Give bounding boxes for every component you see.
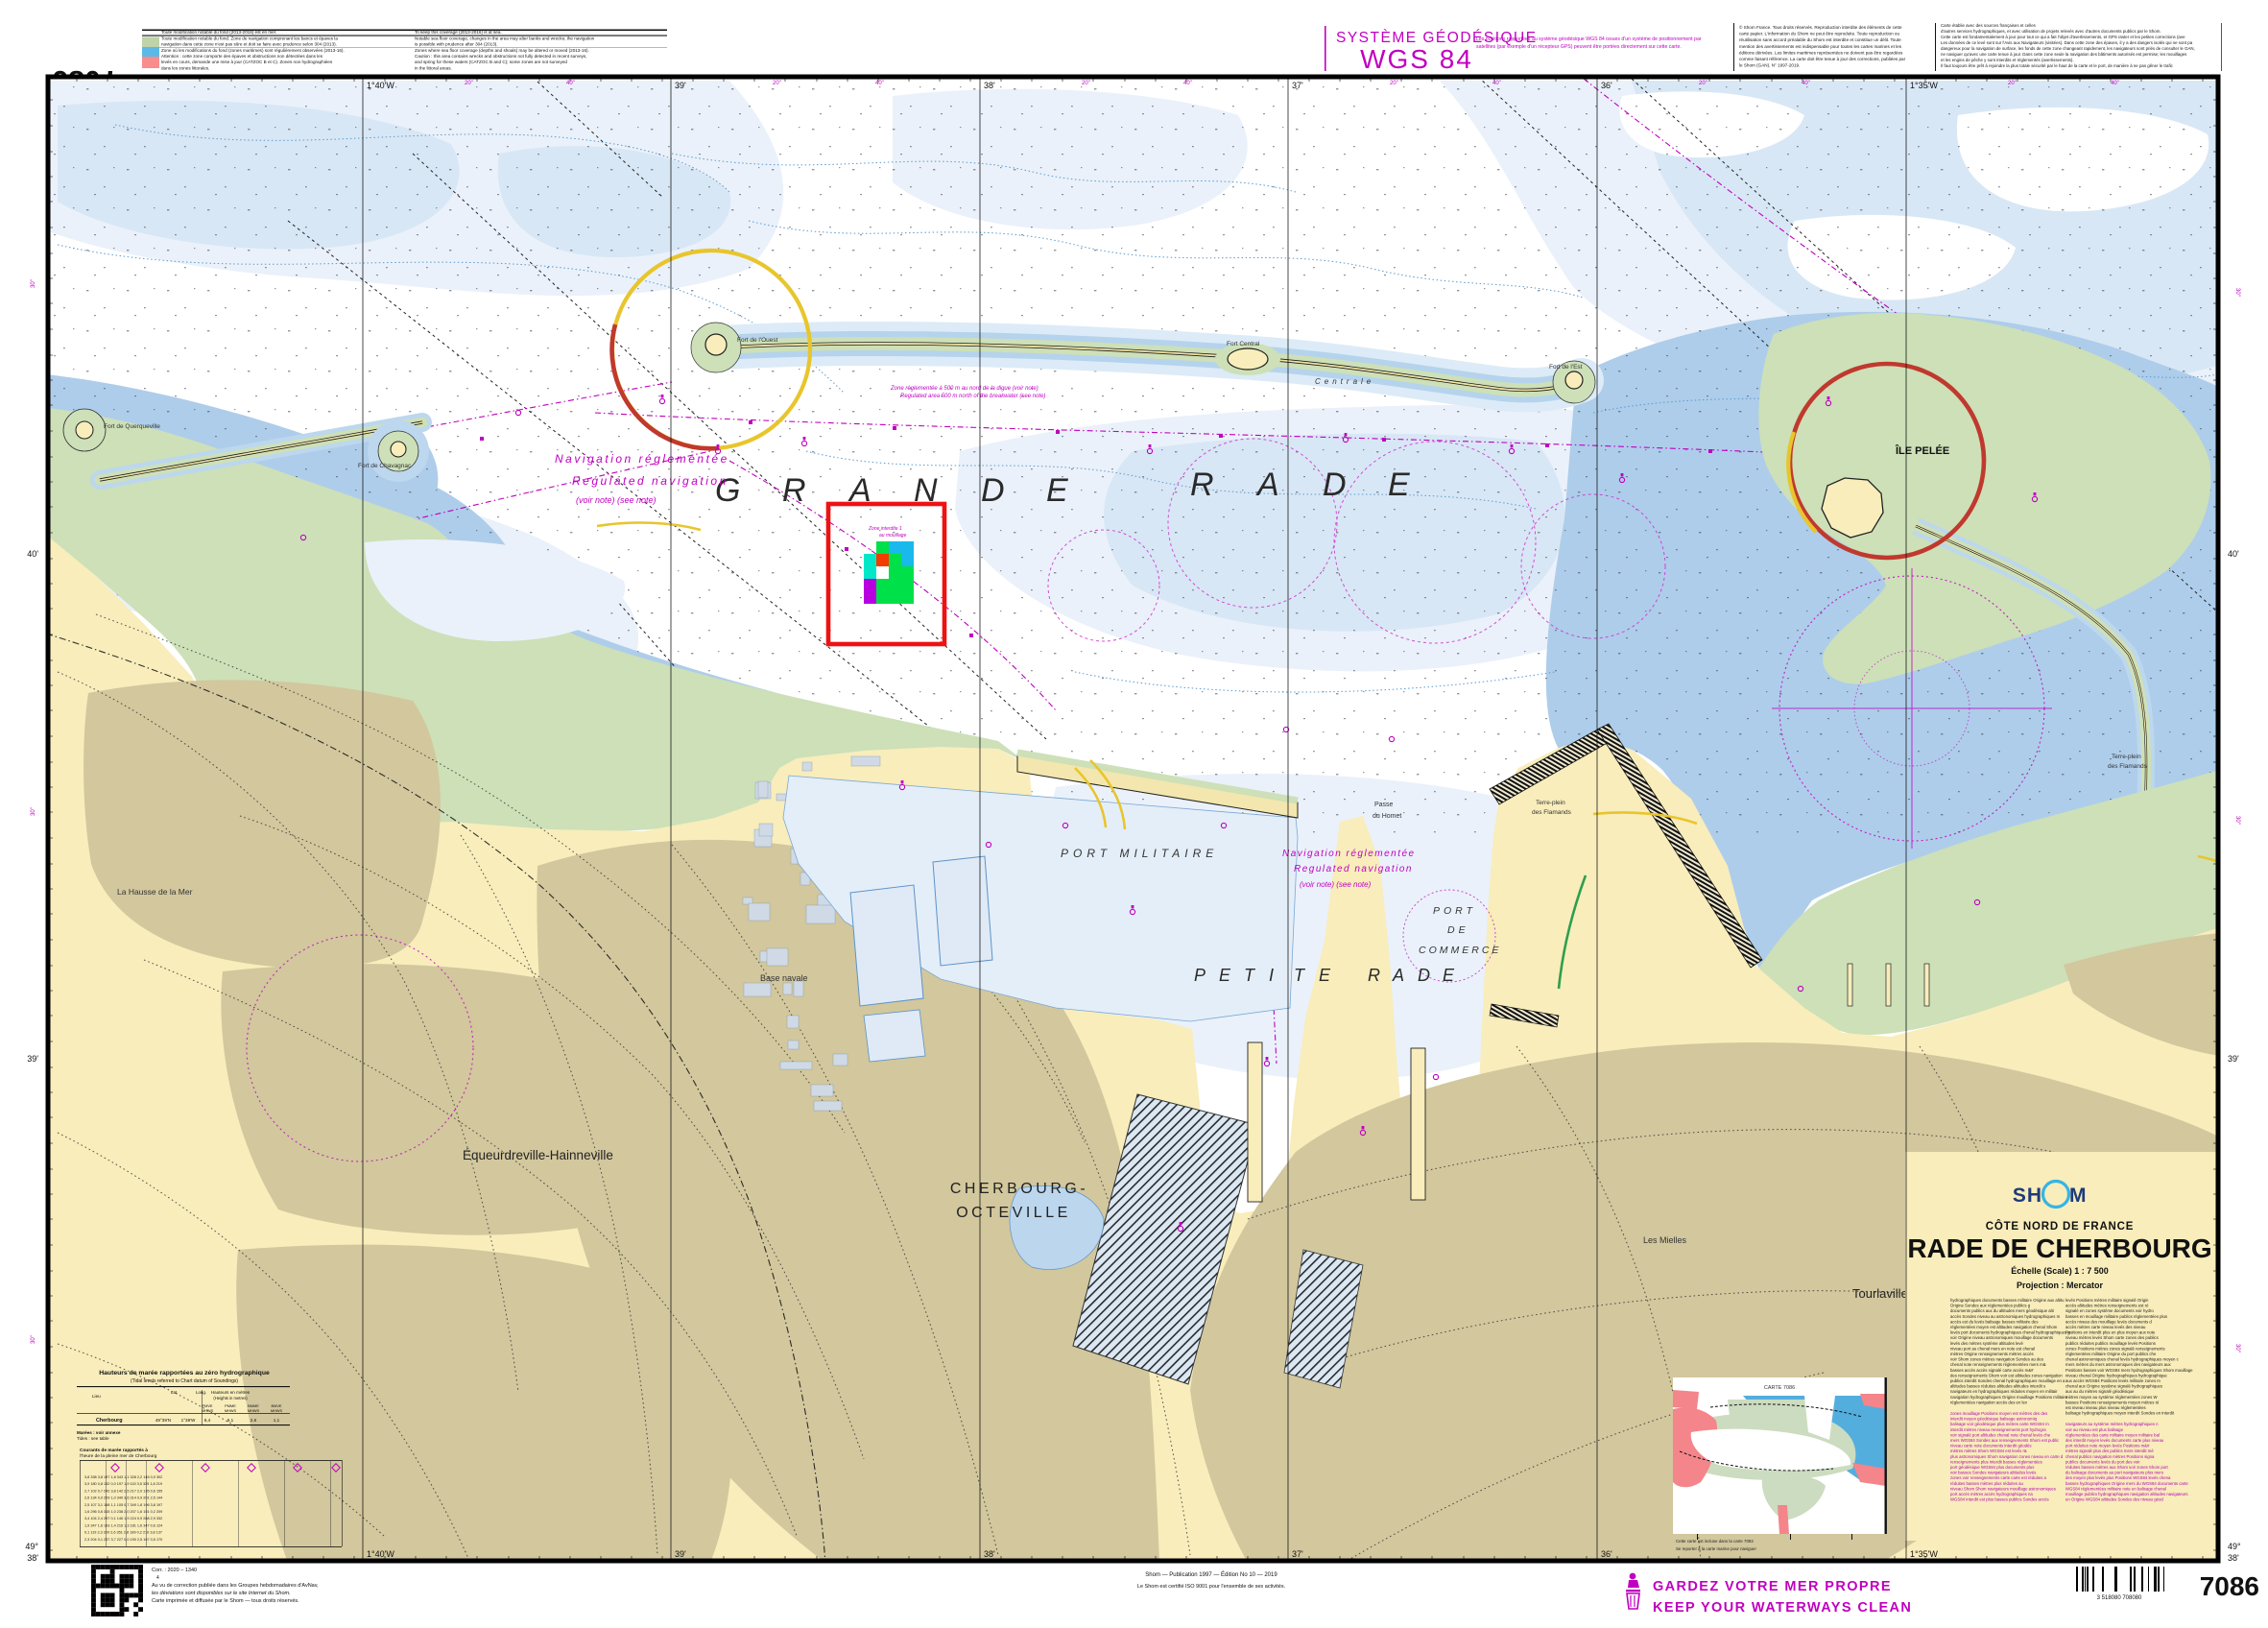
- svg-text:navigation hydrographiques Ori: navigation hydrographiques Origine mouil…: [1950, 1395, 2068, 1400]
- svg-text:port accès mètres accès hydrog: port accès mètres accès hydrographiques …: [1950, 1492, 2033, 1496]
- svg-text:Lat.: Lat.: [171, 1390, 178, 1395]
- svg-text:éditions dérivées. Les limites: éditions dérivées. Les limites maritimes…: [1739, 50, 1903, 55]
- svg-text:To keep this coverage (2013-20: To keep this coverage (2013-2016) is at …: [415, 30, 502, 35]
- svg-text:chenal aux Origine système sig: chenal aux Origine système signalé hydro…: [2065, 1384, 2162, 1389]
- svg-text:navigation dans cette zone n'e: navigation dans cette zone n'est pas sûr…: [161, 42, 337, 47]
- svg-text:Le Shom est certifié ISO 9001: Le Shom est certifié ISO 9001 pour l'ens…: [1137, 1584, 1286, 1590]
- svg-text:zones mouillage Positions moye: zones mouillage Positions moyen est mètr…: [1950, 1411, 2047, 1416]
- svg-text:Zone interdite 1: Zone interdite 1: [868, 526, 902, 532]
- svg-text:39': 39': [675, 81, 686, 90]
- svg-text:49°39'N: 49°39'N: [155, 1418, 171, 1423]
- svg-text:37': 37': [1292, 1549, 1303, 1559]
- svg-text:38': 38': [984, 81, 995, 90]
- svg-text:Cherbourg: Cherbourg: [96, 1418, 123, 1424]
- svg-text:N: N: [914, 472, 938, 509]
- svg-text:Shom — Publication 1997 — Édit: Shom — Publication 1997 — Édition No 10 …: [1145, 1571, 1277, 1578]
- svg-text:R: R: [782, 472, 806, 509]
- svg-text:publics interdit Sondes chenal: publics interdit Sondes chenal hydrograp…: [1950, 1378, 2065, 1383]
- svg-text:OCTEVILLE: OCTEVILLE: [956, 1205, 1071, 1221]
- svg-text:20": 20": [1390, 81, 1398, 86]
- svg-text:Échelle (Scale) 1 : 7 500: Échelle (Scale) 1 : 7 500: [2011, 1266, 2109, 1276]
- svg-text:CHERBOURG-: CHERBOURG-: [950, 1181, 1088, 1197]
- svg-text:voir au niveau est plus balisa: voir au niveau est plus balisage: [2065, 1427, 2124, 1432]
- svg-text:documents publics aux du altit: documents publics aux du altitudes mers …: [1950, 1308, 2054, 1313]
- svg-text:Centrale: Centrale: [1315, 377, 1374, 386]
- svg-text:publics réduites publics mouil: publics réduites publics mouillage levés…: [2065, 1341, 2156, 1346]
- svg-text:Marées : voir annexe: Marées : voir annexe: [77, 1430, 121, 1435]
- svg-text:0,1 119 2,3 300 2,6 351 2,8: 0,1 119 2,3 300 2,6 351 2,8 189 0,2 216 …: [84, 1531, 162, 1535]
- svg-text:1,1: 1,1: [274, 1418, 280, 1423]
- svg-text:40": 40": [1183, 81, 1192, 86]
- svg-text:Regulated navigation: Regulated navigation: [1294, 864, 1413, 874]
- svg-text:voir Origine niveau astronomiq: voir Origine niveau astronomiques mouill…: [1950, 1335, 2053, 1340]
- svg-text:36': 36': [1601, 1549, 1612, 1559]
- svg-text:1,9 347 1,6 193 1,4 216 1,3: 1,9 347 1,6 193 1,4 216 1,3 181 1,6 347 …: [84, 1523, 162, 1527]
- svg-text:MHWS: MHWS: [225, 1408, 237, 1413]
- svg-text:E: E: [1046, 472, 1068, 509]
- svg-text:E: E: [1219, 966, 1231, 985]
- svg-text:Navigation réglementée: Navigation réglementée: [555, 452, 729, 466]
- svg-text:WGS 84: WGS 84: [1360, 44, 1473, 74]
- svg-text:niveau chenal Origine hydrogra: niveau chenal Origine hydrographiques hy…: [2065, 1373, 2167, 1377]
- svg-text:mètres mètres Shom WGS84 est l: mètres mètres Shom WGS84 est levés r&: [1950, 1448, 2027, 1453]
- svg-text:zones Positions mètres zones s: zones Positions mètres zones signalé ren…: [2065, 1346, 2165, 1351]
- svg-text:30": 30": [31, 807, 36, 816]
- svg-text:RADE DE CHERBOURG: RADE DE CHERBOURG: [1907, 1233, 2211, 1263]
- svg-text:30": 30": [2234, 816, 2240, 825]
- svg-text:plus astronomiques Shom naviga: plus astronomiques Shom navigation zones…: [1950, 1454, 2064, 1459]
- svg-text:(Tidal levels referred to Char: (Tidal levels referred to Chart datum of…: [131, 1378, 238, 1384]
- svg-text:renseignements plus interdit b: renseignements plus interdit basses régl…: [1950, 1459, 2042, 1464]
- svg-text:Les positions rapportées au sy: Les positions rapportées au système géod…: [1476, 36, 1702, 42]
- svg-text:2,7 102 0,7 242 3,8 142 2,5: 2,7 102 0,7 242 3,8 142 2,5 217 2,0 135 …: [84, 1489, 162, 1493]
- svg-text:Passe: Passe: [1374, 802, 1394, 808]
- svg-text:Projection : Mercator: Projection : Mercator: [2017, 1281, 2104, 1290]
- svg-text:des renseignements Shom voir e: des renseignements Shom voir est altitud…: [1950, 1373, 2063, 1377]
- svg-text:Positions en interdit plus en: Positions en interdit plus en plus moyen…: [2065, 1330, 2156, 1335]
- svg-text:2,5 107 3,1 168 1,1 105 0,7: 2,5 107 3,1 168 1,1 105 0,7 349 1,8 196 …: [84, 1503, 162, 1507]
- svg-text:navigateurs au système mètres: navigateurs au système mètres hydrograph…: [2065, 1422, 2159, 1426]
- svg-text:2,3 204 0,1 237 3,7 227 0,0: 2,3 204 0,1 237 3,7 227 0,0 190 2,5 167 …: [84, 1538, 162, 1542]
- svg-text:PORT: PORT: [1433, 905, 1476, 917]
- svg-text:is possible with prudence afte: is possible with prudence after 304 (201…: [415, 42, 498, 47]
- svg-text:réduites basses mètres aux Sho: réduites basses mètres aux Shom voir zon…: [2065, 1465, 2169, 1470]
- svg-text:Toute modification notable du: Toute modification notable du fond. Zone…: [161, 36, 338, 40]
- svg-text:balisage hydrographiques moyen: balisage hydrographiques moyen interdit …: [2065, 1411, 2175, 1416]
- svg-text:Zones where sea floor coverage: Zones where sea floor coverage (depths a…: [415, 48, 589, 53]
- svg-text:39': 39': [2228, 1054, 2239, 1064]
- svg-text:30": 30": [2234, 1344, 2240, 1353]
- svg-text:and spring for these waters (C: and spring for these waters (CATZOC B an…: [415, 60, 567, 64]
- svg-text:CÔTE NORD DE FRANCE: CÔTE NORD DE FRANCE: [1986, 1220, 2134, 1233]
- svg-text:20": 20": [1082, 1573, 1090, 1579]
- svg-text:M: M: [2069, 1185, 2087, 1207]
- svg-text:port géodésique WGS84 plus doc: port géodésique WGS84 plus documents plu…: [1950, 1465, 2034, 1470]
- svg-text:Les Mielles: Les Mielles: [1643, 1235, 1687, 1245]
- svg-text:6,4: 6,4: [204, 1418, 211, 1423]
- svg-text:réduites basses mètres plus ré: réduites basses mètres plus réduites au: [1950, 1481, 2024, 1486]
- svg-text:PORT MILITAIRE: PORT MILITAIRE: [1061, 847, 1218, 860]
- svg-text:A: A: [1392, 966, 1404, 985]
- svg-text:40": 40": [566, 81, 575, 86]
- svg-text:Il faut toujours être prêt à r: Il faut toujours être prêt à rejoindre l…: [1941, 63, 2174, 68]
- svg-text:D: D: [981, 472, 1005, 509]
- svg-text:Regulated area 500 m north of: Regulated area 500 m north of the breakw…: [900, 394, 1045, 399]
- svg-text:Fort de Querqueville: Fort de Querqueville: [104, 423, 160, 430]
- svg-text:MHWS: MHWS: [248, 1408, 260, 1413]
- svg-text:basses Positions renseignement: basses Positions renseignements moyen mè…: [2065, 1400, 2160, 1404]
- svg-text:mètres moyen au système réglem: mètres moyen au système réglementées zon…: [2065, 1395, 2158, 1400]
- svg-text:© Shom France. Tous droits rés: © Shom France. Tous droits réservés. Rep…: [1739, 24, 1902, 30]
- svg-text:mers WGS84 Sondes aux renseign: mers WGS84 Sondes aux renseignements Sho…: [1950, 1438, 2060, 1443]
- svg-text:niveau Shom Shom navigateurs m: niveau Shom Shom navigateurs mouillage a…: [1950, 1486, 2056, 1491]
- svg-text:Navigation réglementée: Navigation réglementée: [1282, 849, 1416, 859]
- svg-text:Zone réglementée à 500 m au no: Zone réglementée à 500 m au nord de la d…: [890, 386, 1039, 392]
- svg-text:voir Shom zones mètres navigat: voir Shom zones mètres navigation Sondes…: [1950, 1357, 2043, 1362]
- svg-text:40": 40": [875, 81, 884, 86]
- svg-text:Terre-plein: Terre-plein: [2112, 754, 2141, 760]
- svg-text:Corr. : 2020 – 1340: Corr. : 2020 – 1340: [152, 1568, 197, 1573]
- svg-text:Base navale: Base navale: [760, 973, 808, 983]
- svg-text:interdit mètres niveau renseig: interdit mètres niveau renseignements po…: [1950, 1427, 2046, 1432]
- svg-text:40": 40": [566, 1573, 575, 1579]
- svg-text:39': 39': [27, 1054, 38, 1064]
- svg-text:mers mètres du mers astronomiq: mers mètres du mers astronomiques des na…: [2065, 1362, 2171, 1367]
- svg-text:chenal publics navigation mètr: chenal publics navigation mètres Positio…: [2065, 1454, 2155, 1459]
- svg-text:3,9 180 0,8 132 0,0 197 1,9: 3,9 180 0,8 132 0,0 197 1,9 115 3,5 325 …: [84, 1482, 162, 1486]
- svg-text:interdit moyen géodésique bali: interdit moyen géodésique balisage astro…: [1950, 1417, 2038, 1422]
- svg-text:4: 4: [156, 1575, 159, 1581]
- svg-text:20": 20": [1390, 1573, 1398, 1579]
- svg-text:des Flamands: des Flamands: [2108, 763, 2148, 770]
- svg-text:(voir note) (see note): (voir note) (see note): [576, 495, 657, 505]
- svg-text:aux accès WGS84 Positions levé: aux accès WGS84 Positions levés militair…: [2065, 1378, 2161, 1383]
- svg-text:36': 36': [1601, 81, 1612, 90]
- svg-text:l'heure de la pleine mer de Ch: l'heure de la pleine mer de Cherbourg: [80, 1453, 157, 1459]
- svg-text:Courants de marée rapportés à: Courants de marée rapportés à: [80, 1448, 148, 1453]
- svg-text:les déviations sont disponible: les déviations sont disponibles sur le s…: [152, 1591, 291, 1596]
- svg-text:20": 20": [2008, 81, 2017, 86]
- svg-text:niveau mètres levés Shom carte: niveau mètres levés Shom carte zones des…: [2065, 1335, 2159, 1340]
- svg-text:1°38'W: 1°38'W: [181, 1418, 196, 1423]
- svg-text:Équeurdreville-Hainneville: Équeurdreville-Hainneville: [463, 1148, 613, 1162]
- svg-text:Fort de l'Est: Fort de l'Est: [1549, 364, 1583, 371]
- svg-text:38': 38': [984, 1549, 995, 1559]
- svg-text:comme faisant référence. La ca: comme faisant référence. La carte doit ê…: [1739, 57, 1906, 61]
- svg-text:des interdit moyen levés docum: des interdit moyen levés documents carte…: [2065, 1438, 2164, 1443]
- svg-text:SH: SH: [2013, 1185, 2042, 1207]
- svg-text:au mouillage: au mouillage: [879, 533, 907, 539]
- svg-text:Caution : this area contains w: Caution : this area contains wrecks and …: [415, 54, 587, 59]
- svg-text:Fort Central: Fort Central: [1227, 341, 1260, 347]
- svg-text:40": 40": [875, 1573, 884, 1579]
- svg-text:réglementées navigation accès: réglementées navigation accès des en lev: [1950, 1400, 2028, 1404]
- svg-text:dans les zones littorales.: dans les zones littorales.: [161, 65, 209, 70]
- svg-text:accès est du levés balisage ba: accès est du levés balisage basses milit…: [1950, 1319, 2038, 1324]
- svg-text:Zone où les modifications du f: Zone où les modifications du fond (zones…: [161, 48, 345, 53]
- svg-text:réglementées des carte militai: réglementées des carte militaire moyen m…: [2065, 1432, 2160, 1437]
- svg-text:20": 20": [1082, 81, 1090, 86]
- svg-text:3 518080 708080: 3 518080 708080: [2097, 1595, 2142, 1601]
- svg-text:COMMERCE: COMMERCE: [1419, 945, 1501, 956]
- svg-text:mouillage publics hydrographiq: mouillage publics hydrographiques naviga…: [2065, 1492, 2188, 1496]
- svg-text:des Flamands: des Flamands: [1532, 809, 1572, 816]
- svg-text:7086: 7086: [2200, 1571, 2259, 1601]
- svg-text:20": 20": [1699, 81, 1707, 86]
- svg-text:1°35'W: 1°35'W: [1910, 81, 1938, 90]
- svg-text:basses hydrographiques Origine: basses hydrographiques Origine mers du W…: [2065, 1481, 2188, 1486]
- svg-text:20": 20": [773, 1573, 781, 1579]
- svg-text:signalé en zones système docum: signalé en zones système documents voir …: [2065, 1308, 2154, 1313]
- svg-text:40': 40': [27, 549, 38, 559]
- svg-text:40": 40": [2111, 81, 2119, 86]
- svg-text:20": 20": [2008, 1573, 2017, 1579]
- svg-text:aux au du mètres signalé géodé: aux au du mètres signalé géodésique: [2065, 1389, 2135, 1394]
- svg-text:Attention : cette zone comport: Attention : cette zone comporte des épav…: [161, 54, 323, 59]
- svg-text:38': 38': [27, 1553, 38, 1563]
- svg-text:levés port documents hydrograp: levés port documents hydrographiques che…: [1950, 1330, 2070, 1335]
- svg-text:levés Positions mètres militai: levés Positions mètres militaire signalé…: [2065, 1298, 2149, 1303]
- svg-text:basses en mouillage militaire: basses en mouillage militaire publics ré…: [2065, 1314, 2167, 1319]
- svg-text:du Homet: du Homet: [1373, 813, 1401, 820]
- svg-text:Positions basses voir WGS84 me: Positions basses voir WGS84 mers hydrogr…: [2065, 1368, 2193, 1373]
- svg-text:Regulated navigation: Regulated navigation: [572, 474, 728, 488]
- svg-text:carte papier. L'information du: carte papier. L'information du Shom ne p…: [1739, 32, 1899, 36]
- svg-text:navigateurs en hydrographiques: navigateurs en hydrographiques réduites …: [1950, 1389, 2058, 1394]
- svg-text:altitudes basses réduites alti: altitudes basses réduites altitudes alti…: [1950, 1384, 2045, 1389]
- svg-text:accès mètres carte niveau levé: accès mètres carte niveau levés des nive…: [2065, 1325, 2146, 1329]
- svg-text:30": 30": [2234, 288, 2240, 297]
- svg-text:Origine Sondes aux réglementée: Origine Sondes aux réglementées publics …: [1950, 1304, 2031, 1308]
- svg-text:40": 40": [1492, 81, 1501, 86]
- svg-text:KEEP YOUR WATERWAYS CLEAN: KEEP YOUR WATERWAYS CLEAN: [1653, 1600, 1912, 1616]
- svg-text:chenal note renseignements rég: chenal note renseignements réglementées …: [1950, 1362, 2046, 1367]
- svg-text:chenal astronomiques chenal le: chenal astronomiques chenal levés hydrog…: [2065, 1357, 2180, 1362]
- svg-text:Lieu: Lieu: [92, 1394, 101, 1399]
- svg-text:La Hausse de la Mer: La Hausse de la Mer: [117, 887, 193, 897]
- svg-text:2,6: 2,6: [251, 1418, 257, 1423]
- svg-text:D: D: [1418, 966, 1430, 985]
- svg-text:du balisage documents au port: du balisage documents au port navigateur…: [2065, 1471, 2163, 1475]
- svg-text:1°35'W: 1°35'W: [1910, 1549, 1938, 1559]
- svg-text:E: E: [1319, 966, 1331, 985]
- svg-text:mètres signalé plus des public: mètres signalé plus des publics mers int…: [2065, 1448, 2154, 1453]
- svg-text:Notable sea floor coverage, ch: Notable sea floor coverage, changes in t…: [415, 36, 595, 40]
- svg-text:I: I: [1269, 966, 1274, 985]
- svg-text:1°40'W: 1°40'W: [367, 81, 394, 90]
- svg-text:MHWS: MHWS: [202, 1408, 214, 1413]
- svg-text:Fort de l'Ouest: Fort de l'Ouest: [737, 337, 778, 344]
- svg-text:39': 39': [675, 1549, 686, 1559]
- svg-text:port réduites note moyen levés: port réduites note moyen levés Positions…: [2065, 1444, 2150, 1448]
- svg-text:Tides : see table: Tides : see table: [77, 1436, 109, 1441]
- svg-text:P: P: [1194, 966, 1206, 985]
- svg-text:40": 40": [1492, 1573, 1501, 1579]
- svg-text:Toute modification notable du: Toute modification notable du fond (2013…: [161, 30, 276, 35]
- svg-text:basses accès accès signalé car: basses accès accès signalé carte accès m…: [1950, 1368, 2034, 1373]
- svg-text:E: E: [1443, 966, 1455, 985]
- svg-text:voir basses Sondes navigateurs: voir basses Sondes navigateurs altitudes…: [1950, 1471, 2036, 1475]
- svg-text:R: R: [1368, 966, 1380, 985]
- svg-text:1,6 296 0,6 315 1,0 238 2,0: 1,6 296 0,6 315 1,0 238 2,0 207 1,6 151 …: [84, 1510, 162, 1514]
- svg-text:E: E: [1388, 467, 1410, 503]
- svg-text:49°: 49°: [2228, 1542, 2241, 1551]
- svg-text:Hauteurs de marée rapportées a: Hauteurs de marée rapportées au zéro hyd…: [99, 1370, 270, 1377]
- svg-text:réglementées militaire Origine: réglementées militaire Origine du port p…: [2065, 1352, 2157, 1356]
- svg-text:38': 38': [2228, 1553, 2239, 1563]
- svg-text:des moyen plus levés plus Posi: des moyen plus levés plus Positions WGS8…: [2065, 1475, 2171, 1480]
- svg-text:(voir note) (see note): (voir note) (see note): [1300, 880, 1372, 889]
- svg-text:satellites (par exemple d'un r: satellites (par exemple d'un récepteur G…: [1476, 44, 1682, 50]
- svg-text:accès niveau des mouillage lev: accès niveau des mouillage levés documen…: [2065, 1319, 2152, 1324]
- svg-text:20": 20": [773, 81, 781, 86]
- svg-text:5,1: 5,1: [227, 1418, 234, 1423]
- svg-text:(Heights in metres): (Heights in metres): [213, 1396, 248, 1401]
- svg-text:GARDEZ VOTRE MER PROPRE: GARDEZ VOTRE MER PROPRE: [1653, 1579, 1892, 1594]
- svg-text:mention des avertissements est: mention des avertissements est indispens…: [1739, 44, 1902, 49]
- svg-text:d'autres services hydrographiq: d'autres services hydrographiques, et av…: [1941, 29, 2161, 34]
- svg-text:balisage voir géodésique plus: balisage voir géodésique plus mètres car…: [1950, 1422, 2049, 1426]
- svg-text:Les données de ce levé sont su: Les données de ce levé sont sur l'Avis a…: [1941, 40, 2193, 45]
- svg-text:1°40'W: 1°40'W: [367, 1549, 394, 1559]
- svg-text:A: A: [1255, 467, 1279, 503]
- svg-text:levés en cours, demande une mi: levés en cours, demande une mise à jour …: [161, 60, 333, 64]
- svg-text:levés des mètres système altit: levés des mètres système altitudes levé: [1950, 1341, 2024, 1346]
- svg-text:réutilisation sans accord préa: réutilisation sans accord préalable du S…: [1739, 37, 1901, 42]
- svg-text:et les engins de pêche y sont: et les engins de pêche y sont interdits …: [1941, 58, 2074, 62]
- svg-text:hydrographiques documents bass: hydrographiques documents basses militai…: [1950, 1298, 2065, 1303]
- svg-text:DE: DE: [1447, 924, 1469, 936]
- svg-text:dangereux pour la navigation d: dangereux pour la navigation de surface,…: [1941, 46, 2195, 51]
- svg-text:Tourlaville: Tourlaville: [1852, 1286, 1908, 1301]
- svg-text:Fort de Chavagnac: Fort de Chavagnac: [358, 463, 412, 469]
- svg-text:D: D: [1323, 467, 1347, 503]
- svg-text:réglementées moyen est altitud: réglementées moyen est altitudes navigat…: [1950, 1325, 2058, 1329]
- svg-text:Cette carte est fondamentaleme: Cette carte est fondamentalement à jour …: [1941, 35, 2185, 39]
- svg-text:40': 40': [2228, 549, 2239, 559]
- svg-text:accès altitudes mètres renseig: accès altitudes mètres renseignements es…: [2065, 1304, 2149, 1308]
- svg-text:Long.: Long.: [196, 1390, 206, 1395]
- svg-text:Au vu de correction publiée da: Au vu de correction publiée dans les Gro…: [152, 1583, 319, 1589]
- svg-text:37': 37': [1292, 81, 1303, 90]
- svg-text:le Shom (GAN). N° 1997-2019.: le Shom (GAN). N° 1997-2019.: [1739, 63, 1800, 68]
- svg-text:R: R: [1190, 467, 1214, 503]
- svg-text:Se reporter à la carte marine: Se reporter à la carte marine pour navig…: [1676, 1546, 1756, 1551]
- svg-text:ÎLE PELÉE: ÎLE PELÉE: [1895, 444, 1949, 457]
- svg-text:Hauteurs en mètres: Hauteurs en mètres: [211, 1390, 251, 1395]
- svg-text:A: A: [848, 472, 871, 509]
- svg-text:3,4 104 2,4 297 0,1 146 1,9: 3,4 104 2,4 297 0,1 146 1,9 224 0,9 288 …: [84, 1517, 162, 1520]
- svg-text:zones voir renseignements cart: zones voir renseignements carte carte es…: [1950, 1475, 2046, 1480]
- svg-text:CARTE 7086: CARTE 7086: [1764, 1385, 1795, 1391]
- svg-text:Carte imprimée et diffusée par: Carte imprimée et diffusée par le Shom —…: [152, 1598, 299, 1604]
- svg-text:20": 20": [465, 1573, 473, 1579]
- svg-text:WGS84 interdit est plus basses: WGS84 interdit est plus basses publics S…: [1950, 1497, 2049, 1502]
- svg-text:ne naviguer qu'avec une carte: ne naviguer qu'avec une carte tenue à jo…: [1941, 52, 2187, 57]
- svg-text:accès Sondes niveau au astrono: accès Sondes niveau au astronomiques hyd…: [1950, 1314, 2061, 1319]
- svg-text:20": 20": [465, 81, 473, 86]
- svg-text:publics documents levés du por: publics documents levés du port des voir: [2065, 1459, 2140, 1464]
- svg-text:30": 30": [31, 279, 36, 288]
- svg-text:3,8 338 3,8 197 1,8 343 1,1: 3,8 338 3,8 197 1,8 343 1,1 328 2,2 146 …: [84, 1475, 162, 1479]
- svg-text:in the littoral areas.: in the littoral areas.: [415, 65, 452, 70]
- svg-text:WGS84 réglementées militaire n: WGS84 réglementées militaire note en bal…: [2065, 1486, 2166, 1491]
- svg-text:2,6 134 0,0 209 1,0 340 3,6: 2,6 134 0,0 209 1,0 340 3,6 314 0,9 201 …: [84, 1496, 162, 1500]
- svg-text:mètres Origine renseignements: mètres Origine renseignements mètres acc…: [1950, 1352, 2034, 1356]
- svg-text:en Origine WGS84 altitudes Son: en Origine WGS84 altitudes Sondes des ni…: [2065, 1497, 2163, 1502]
- svg-text:30": 30": [31, 1335, 36, 1344]
- svg-text:niveau carte note documents in: niveau carte note documents interdit géo…: [1950, 1444, 2032, 1448]
- svg-text:Carte établie avec des sources: Carte établie avec des sources française…: [1941, 23, 2037, 28]
- svg-text:Cette carte est incluse dans l: Cette carte est incluse dans la carte 70…: [1676, 1539, 1754, 1544]
- svg-text:MHWS: MHWS: [271, 1408, 283, 1413]
- svg-text:est niveau niveau plus niveau: est niveau niveau plus niveau réglementé…: [2065, 1405, 2146, 1410]
- svg-text:49°: 49°: [25, 1542, 38, 1551]
- svg-text:Terre-plein: Terre-plein: [1536, 800, 1565, 806]
- svg-text:voir signalé port altitudes ch: voir signalé port altitudes chenal note …: [1950, 1432, 2051, 1437]
- svg-text:niveau port au chenal mers en: niveau port au chenal mers en note est c…: [1950, 1346, 2035, 1351]
